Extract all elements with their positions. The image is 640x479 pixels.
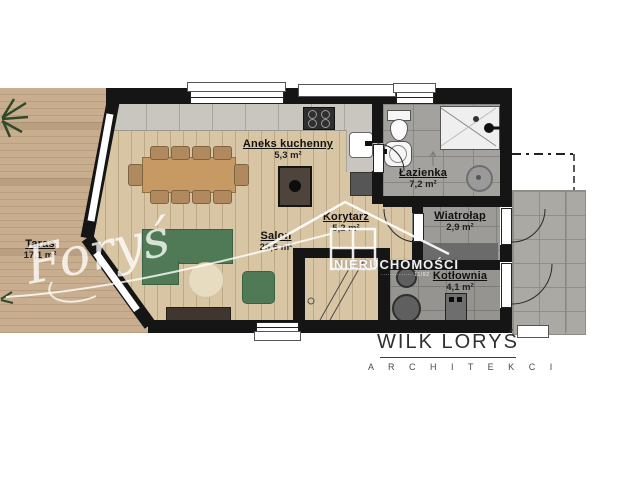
room-label-korytarz: Korytarz 5,2 m² <box>306 211 386 235</box>
kitchen-tap <box>365 141 372 146</box>
room-area: 5,3 m² <box>228 151 348 162</box>
room-area: 4,1 m² <box>420 283 500 294</box>
wall-bath-south <box>383 196 505 207</box>
sofa <box>142 229 233 264</box>
chair <box>171 190 190 204</box>
window-sill-high <box>298 84 396 97</box>
wall-kitchen-bath-upper <box>372 104 383 143</box>
room-area: 2,9 m² <box>420 223 500 234</box>
watermark-license-text: ·············· 11/92 <box>381 272 430 278</box>
bathroom-sink <box>384 141 412 167</box>
floor-plan: Taras 17,1 m² Aneks kuchenny 5,3 m² Salo… <box>0 0 640 479</box>
wall-stairs-west <box>293 258 305 320</box>
watermark-agency-name: NIERUCHOMOŚCI <box>334 257 459 272</box>
stove-flue <box>289 180 301 192</box>
round-rug <box>188 262 224 298</box>
window-sill <box>393 83 436 93</box>
wood-stove <box>278 166 312 207</box>
architect-logo: WILK LORYŚ A R C H I T E K C I <box>368 331 528 372</box>
chair <box>192 190 211 204</box>
kitchen-appliance <box>350 172 374 196</box>
room-area: 17,1 m² <box>8 251 72 262</box>
window-sill <box>187 82 286 92</box>
chair <box>150 190 169 204</box>
room-name: Salon <box>246 230 306 243</box>
outdoor-paving <box>512 190 586 335</box>
chair <box>192 146 211 160</box>
boiler-room-door <box>501 263 512 308</box>
room-name: Wiatrołap <box>420 210 500 223</box>
burner <box>321 110 330 119</box>
room-label-taras: Taras 17,1 m² <box>8 238 72 262</box>
room-name: Korytarz <box>306 211 386 224</box>
room-name: Taras <box>8 238 72 251</box>
chair <box>171 146 190 160</box>
chair <box>128 164 143 186</box>
room-label-lazienka: Łazienka 7,2 m² <box>383 167 463 191</box>
room-area: 7,2 m² <box>383 180 463 191</box>
washing-machine <box>466 165 493 192</box>
room-label-aneks: Aneks kuchenny 5,3 m² <box>228 138 348 162</box>
room-name: Łazienka <box>383 167 463 180</box>
chair <box>234 164 249 186</box>
room-label-salon: Salon 28,6 m² <box>246 230 306 254</box>
entrance-door <box>501 208 512 245</box>
chair <box>150 146 169 160</box>
logo-divider <box>380 357 516 358</box>
room-area: 5,2 m² <box>306 224 386 235</box>
tv-console <box>166 307 231 321</box>
boiler-knob <box>457 297 462 302</box>
room-label-wiatrolap: Wiatrołap 2,9 m² <box>420 210 500 234</box>
window-sill <box>254 331 301 341</box>
room-area: 28,6 m² <box>246 243 306 254</box>
room-label-kotlownia: Kotłownia 4,1 m² <box>420 270 500 294</box>
room-name: Aneks kuchenny <box>228 138 348 151</box>
washer-drum <box>476 175 481 180</box>
chair <box>213 190 232 204</box>
burner <box>308 110 317 119</box>
armchair <box>242 271 275 304</box>
boiler-knob <box>449 297 454 302</box>
sofa-chaise <box>142 261 179 285</box>
sink-basin <box>389 145 407 163</box>
logo-subtitle: A R C H I T E K C I <box>368 362 528 372</box>
burner <box>321 119 330 128</box>
wall-kitchen-bath-lower <box>372 171 383 204</box>
burner <box>308 119 317 128</box>
cooktop <box>303 107 335 130</box>
logo-title: WILK LORYŚ <box>368 331 528 354</box>
dining-table <box>142 157 236 193</box>
window-living-north <box>190 90 284 104</box>
shower-tray <box>440 106 500 150</box>
water-tank-large <box>392 294 421 323</box>
